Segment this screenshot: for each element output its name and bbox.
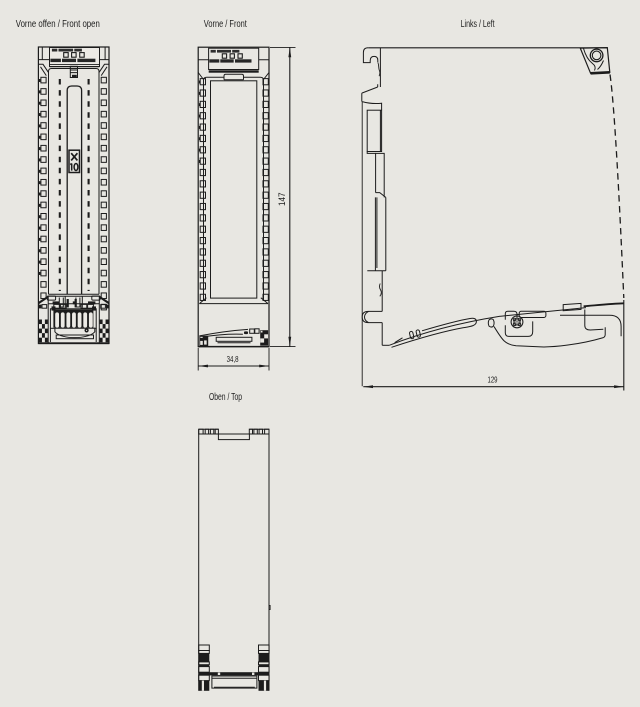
svg-text:129: 129	[488, 374, 498, 384]
svg-text:147: 147	[277, 193, 288, 207]
svg-text:34,8: 34,8	[227, 354, 239, 364]
svg-text:Vorne / Front: Vorne / Front	[204, 19, 247, 30]
svg-text:Vorne offen / Front open: Vorne offen / Front open	[16, 19, 100, 30]
svg-text:Links / Left: Links / Left	[461, 19, 495, 30]
svg-text:Oben / Top: Oben / Top	[209, 392, 242, 403]
